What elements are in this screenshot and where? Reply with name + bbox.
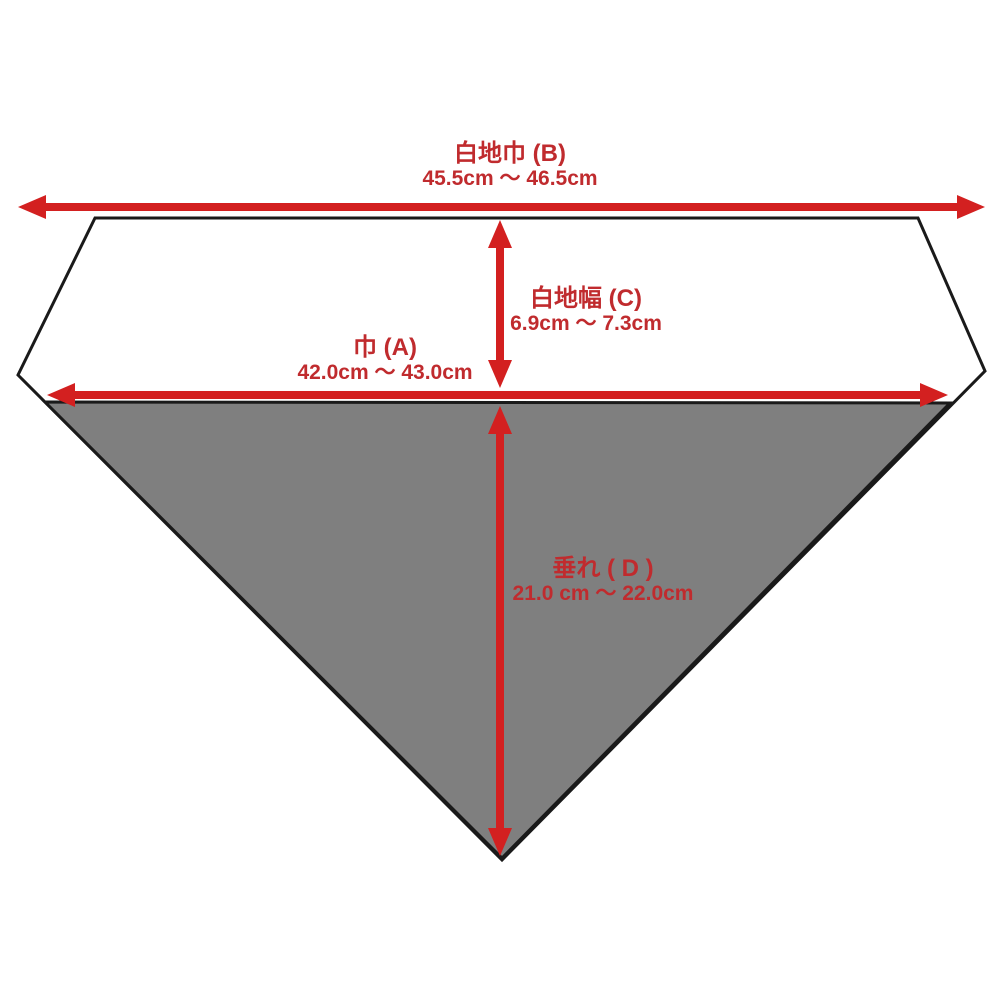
dimension-label-d: 垂れ ( D ) 21.0 cm ～ 22.0cm xyxy=(513,556,694,606)
dimension-label-b: 白地巾 (B) 45.5cm ～ 46.5cm xyxy=(422,141,597,191)
dimension-range-b: 45.5cm ～ 46.5cm xyxy=(422,167,597,191)
dimension-label-c: 白地幅 (C) 6.9cm ～ 7.3cm xyxy=(510,286,662,336)
dimension-name-c: 白地幅 (C) xyxy=(510,286,662,312)
diagram-stage: 白地巾 (B) 45.5cm ～ 46.5cm 白地幅 (C) 6.9cm ～ … xyxy=(0,0,1000,1000)
arrowhead-b-right xyxy=(957,195,985,219)
dimension-arrow-b xyxy=(18,195,985,219)
dimension-range-a: 42.0cm ～ 43.0cm xyxy=(297,361,472,385)
arrowhead-b-left xyxy=(18,195,46,219)
dimension-label-a: 巾 (A) 42.0cm ～ 43.0cm xyxy=(297,335,472,385)
dimension-name-d: 垂れ ( D ) xyxy=(513,556,694,582)
dimension-range-d: 21.0 cm ～ 22.0cm xyxy=(513,582,694,606)
dimension-name-a: 巾 (A) xyxy=(297,335,472,361)
dimension-range-c: 6.9cm ～ 7.3cm xyxy=(510,312,662,336)
dimension-name-b: 白地巾 (B) xyxy=(422,141,597,167)
